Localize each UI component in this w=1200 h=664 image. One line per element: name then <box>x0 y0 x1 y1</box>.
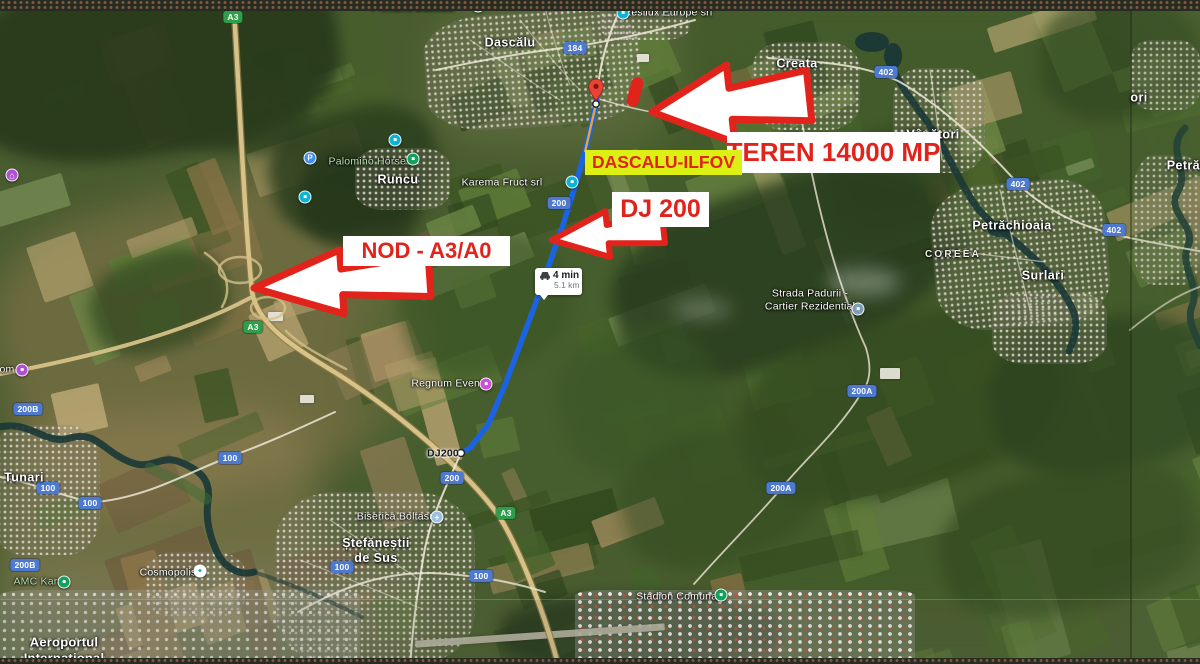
map-label-biserica-boltasu: Biserica Boltasu <box>357 511 435 524</box>
stadion-comunal-icon[interactable]: ■ <box>715 589 728 602</box>
top-stitch-strip <box>0 0 1200 11</box>
map-label-runcu: Runcu <box>378 173 419 188</box>
map-label-vanatori-partial: ori <box>1130 91 1147 106</box>
road-shield-100: 100 <box>470 570 493 582</box>
map-label-dj200-label: DJ200 <box>427 448 459 461</box>
road-shield-184: 184 <box>564 42 587 54</box>
map-label-stefanestii-de-sus: Ștefăneștiide Sus <box>342 536 410 566</box>
map-label-amc-kart: AMC Kart <box>13 576 60 589</box>
om-partial-icon[interactable]: ■ <box>16 364 29 377</box>
strada-padurii-icon[interactable]: ■ <box>852 303 865 316</box>
road-shield-a3: A3 <box>243 321 262 333</box>
cosmopolis-icon[interactable]: ● <box>194 565 207 578</box>
road-shield-200a: 200A <box>847 385 876 397</box>
map-label-om-partial: om <box>0 364 15 377</box>
palomino-horses-icon[interactable]: ■ <box>407 153 420 166</box>
satellite-map[interactable]: Primăria Dascălu■Resilux Europe srl■Dasc… <box>0 0 1200 664</box>
road-shield-200: 200 <box>441 472 464 484</box>
poi-teal-2-icon[interactable]: ■ <box>299 191 312 204</box>
dj200-callout-label: DJ 200 <box>612 192 709 227</box>
road-shield-a3: A3 <box>496 507 515 519</box>
map-label-stadion-comunal: Stadion Comunal <box>636 591 720 604</box>
road-shield-200b: 200B <box>13 403 42 415</box>
road-shield-402: 402 <box>875 66 898 78</box>
road-shield-402: 402 <box>1103 224 1126 236</box>
car-icon <box>539 271 551 281</box>
route-box-pointer <box>540 295 548 300</box>
map-label-surlari: Surlari <box>1022 269 1064 284</box>
map-label-coreea: COREEA <box>925 249 981 261</box>
teren-label: TEREN 14000 MP <box>727 132 940 173</box>
road-shield-a3: A3 <box>223 11 242 23</box>
map-label-strada-padurii: Strada Padurii -Cartier Rezidential <box>765 287 855 312</box>
map-label-palomino-horses: Palomino Horses <box>329 156 412 169</box>
poi-teal-1-icon[interactable]: ■ <box>389 134 402 147</box>
road-shield-200: 200 <box>548 197 571 209</box>
biserica-boltasu-icon[interactable]: + <box>431 511 444 524</box>
map-label-regnum-events: Regnum Events <box>411 378 488 391</box>
road-shield-100: 100 <box>219 452 242 464</box>
location-pin-icon[interactable] <box>585 78 607 102</box>
road-shield-402: 402 <box>1007 178 1030 190</box>
map-label-tunari: Tunari <box>4 471 44 486</box>
regnum-events-icon[interactable]: ■ <box>480 378 493 391</box>
dascalu-ilfov-label: DASCALU-ILFOV <box>585 150 742 175</box>
map-label-dascalu: Dascălu <box>485 36 536 51</box>
route-info-box[interactable]: 4 min 5.1 km <box>535 268 582 295</box>
map-label-petrachioaia-partial: Petrăchi <box>1167 159 1200 174</box>
bottom-stitch-strip <box>0 658 1200 664</box>
karema-fruct-srl-icon[interactable]: ■ <box>566 176 579 189</box>
road-shield-100: 100 <box>79 497 102 509</box>
parking-icon[interactable]: P <box>304 152 317 165</box>
map-label-karema-fruct-srl: Karema Fruct srl <box>462 177 543 190</box>
home-purple-icon[interactable]: ⌂ <box>6 169 19 182</box>
road-shield-200a: 200A <box>766 482 795 494</box>
map-label-cosmopolis: Cosmopolis <box>140 567 197 580</box>
road-shield-200b: 200B <box>10 559 39 571</box>
nod-a3-a0-label: NOD - A3/A0 <box>343 236 510 266</box>
amc-kart-icon[interactable]: ■ <box>58 576 71 589</box>
route-distance: 5.1 km <box>554 281 582 290</box>
map-label-petrachioaia: Petrăchioaia <box>972 219 1051 234</box>
